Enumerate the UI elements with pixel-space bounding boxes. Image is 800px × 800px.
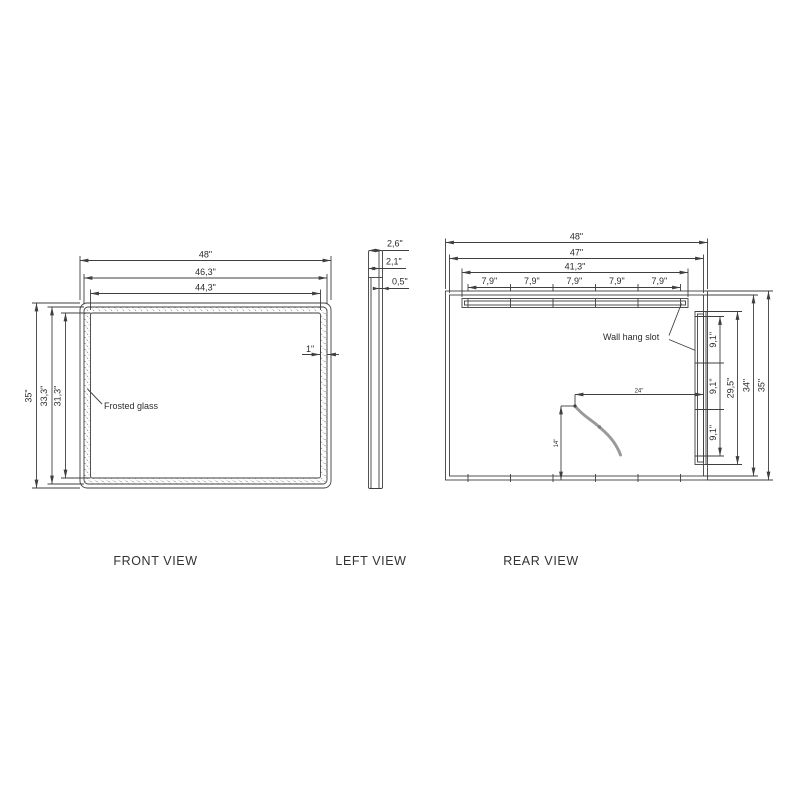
- front-dim-1in: 1": [306, 344, 314, 354]
- rear-side-seg-1: 9,1": [708, 332, 718, 348]
- mirror-three-view-drawing: 48" 46,3" 44,3" 35" 33,3" 31,3" 1" Frost…: [0, 0, 800, 800]
- front-dim-48: 48": [199, 250, 212, 260]
- rear-dim-48: 48": [570, 232, 583, 242]
- left-view-label: LEFT VIEW: [335, 554, 406, 568]
- rear-side-seg-2: 9,1": [708, 378, 718, 394]
- rear-dim-47: 47": [570, 248, 583, 258]
- front-mirror-frame: [80, 303, 331, 488]
- cord-mid-marker: [598, 425, 601, 428]
- rear-slot-seg-2: 7,9": [524, 276, 540, 286]
- side-slot-segment-ticks: [695, 317, 706, 457]
- rear-outer-rect: [446, 291, 708, 480]
- front-dim-31-3: 31,3": [53, 386, 63, 407]
- left-dim-2-6: 2,6": [387, 239, 403, 249]
- arrow-0-5-left: [373, 287, 379, 290]
- front-view: [32, 256, 339, 488]
- wall-hang-slot-leaders: [669, 304, 696, 351]
- front-dim-33-3: 33,3": [39, 386, 49, 407]
- frosted-glass-note: Frosted glass: [104, 401, 159, 411]
- power-cord: [573, 404, 620, 455]
- rear-dim-35: 35": [757, 379, 767, 392]
- rear-slot-seg-1: 7,9": [481, 276, 497, 286]
- left-profile: [369, 251, 383, 489]
- rear-top-hang-slot: [462, 299, 688, 308]
- arrow-2-1-right: [373, 267, 380, 270]
- rear-view-label: REAR VIEW: [503, 554, 579, 568]
- slot-leader-side: [669, 340, 696, 351]
- front-dim-35: 35": [24, 389, 34, 402]
- top-slot-outer: [462, 299, 688, 308]
- top-slot-segment-ticks: [468, 299, 681, 308]
- slot-leader-top: [669, 304, 682, 336]
- power-cord-curve: [575, 406, 621, 455]
- rear-slot-seg-3: 7,9": [566, 276, 582, 286]
- rear-bottom-ticks: [468, 474, 681, 482]
- rear-body: [446, 291, 708, 482]
- technical-drawing-canvas: 48" 46,3" 44,3" 35" 33,3" 31,3" 1" Frost…: [0, 0, 800, 800]
- front-dim-44-3: 44,3": [195, 283, 216, 293]
- left-dim-2-1: 2,1": [386, 257, 402, 267]
- rear-slot-seg-5: 7,9": [651, 276, 667, 286]
- rear-side-seg-3: 9,1": [708, 425, 718, 441]
- wall-hang-slot-note: Wall hang slot: [603, 332, 660, 342]
- arrow-0-5-right: [383, 287, 389, 290]
- left-dim-0-5: 0,5": [392, 277, 408, 287]
- rear-dim-14: 14": [554, 439, 560, 448]
- arrow-2-6-left: [369, 249, 376, 253]
- rear-slot-seg-4: 7,9": [609, 276, 625, 286]
- front-view-label: FRONT VIEW: [113, 554, 197, 568]
- rear-dim-41-3: 41,3": [565, 262, 586, 272]
- side-slot-inner: [698, 314, 704, 462]
- top-slot-inner: [465, 301, 686, 305]
- front-mirror-glass: [91, 313, 321, 478]
- rear-dim-29-5: 29,5": [726, 378, 736, 399]
- front-dim-46-3: 46,3": [195, 267, 216, 277]
- cord-dimensions: [561, 395, 704, 481]
- rear-dim-34: 34": [742, 379, 752, 392]
- side-slot-outer: [695, 312, 706, 465]
- rear-inner-rect: [450, 295, 704, 476]
- rear-dim-24: 24": [635, 389, 644, 395]
- rear-side-hang-slot: [695, 312, 706, 465]
